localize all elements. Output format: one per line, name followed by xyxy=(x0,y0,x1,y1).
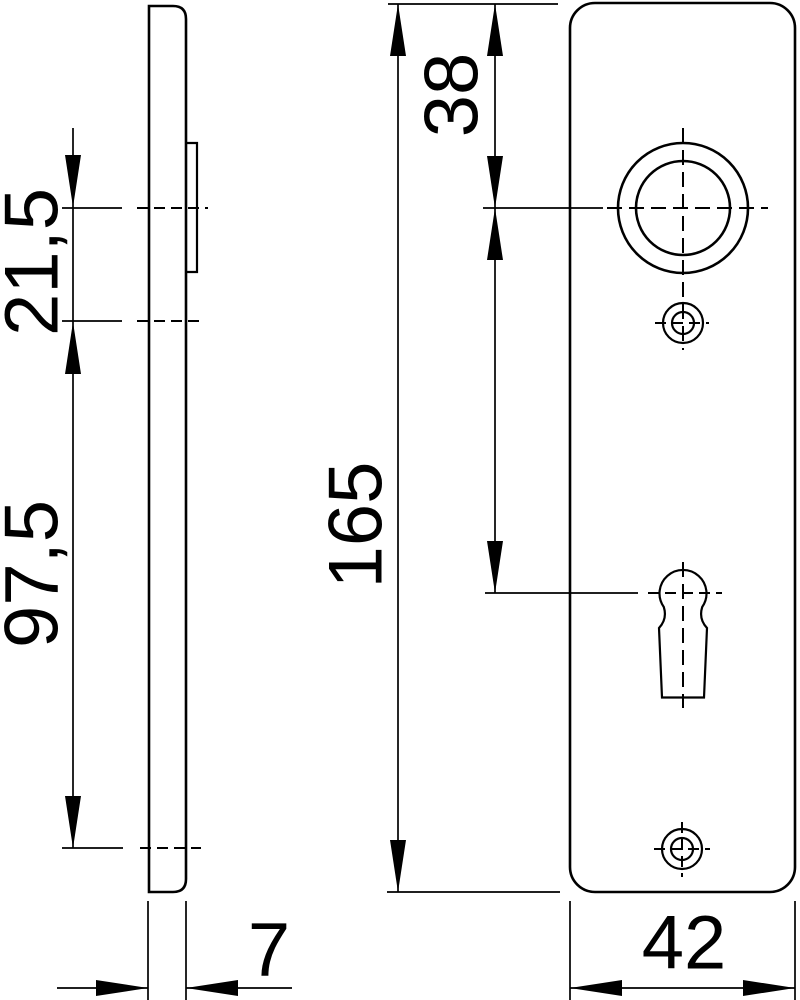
arrowhead-keyhole-top xyxy=(487,208,503,260)
arrowhead-38-top xyxy=(487,4,503,56)
arrowhead-38-bottom xyxy=(487,156,503,208)
dimension-labels: 21,5 97,5 165 38 7 42 xyxy=(0,53,726,993)
label-top-to-handle: 38 xyxy=(410,53,495,138)
arrowhead-42-left xyxy=(570,980,622,996)
label-plate-width: 42 xyxy=(642,901,727,986)
dimension-drawing-svg: 21,5 97,5 165 38 7 42 xyxy=(0,0,800,1000)
label-plate-thickness: 7 xyxy=(248,908,290,993)
extension-lines xyxy=(62,4,795,1000)
arrowhead-7-right xyxy=(186,980,238,996)
arrowhead-bottom-screw-down xyxy=(65,796,81,848)
label-plate-height: 165 xyxy=(314,462,399,589)
side-view-plate-outline xyxy=(149,6,186,892)
front-view xyxy=(570,3,795,892)
side-view xyxy=(137,6,208,892)
label-handle-to-top-screw: 21,5 xyxy=(0,188,75,336)
arrowhead-42-right xyxy=(743,980,795,996)
arrowhead-keyhole-bottom xyxy=(487,541,503,593)
technical-drawing-canvas: 21,5 97,5 165 38 7 42 xyxy=(0,0,800,1000)
label-screw-spacing: 97,5 xyxy=(0,500,75,648)
arrowhead-165-top xyxy=(390,4,406,56)
arrowhead-7-left xyxy=(96,980,148,996)
arrowhead-165-bottom xyxy=(390,840,406,892)
